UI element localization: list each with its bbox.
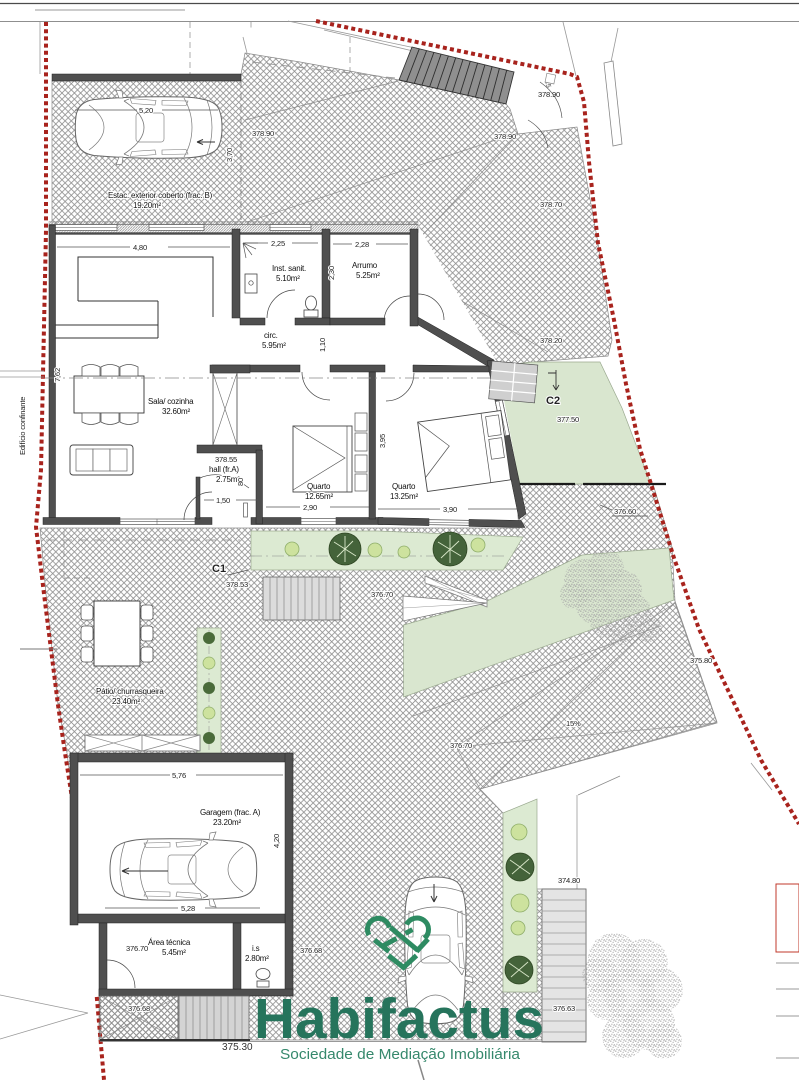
svg-text:375.30: 375.30	[222, 1042, 253, 1053]
svg-text:2,25: 2,25	[271, 239, 285, 248]
svg-text:5.10m²: 5.10m²	[276, 274, 300, 283]
svg-text:circ.: circ.	[264, 331, 278, 340]
svg-text:80: 80	[236, 478, 245, 486]
svg-text:376.70: 376.70	[450, 741, 472, 750]
svg-text:Edifício confinante: Edifício confinante	[18, 397, 27, 455]
svg-text:Área técnica: Área técnica	[148, 938, 191, 947]
svg-text:376.63: 376.63	[553, 1004, 575, 1013]
svg-text:5.95m²: 5.95m²	[262, 341, 286, 350]
svg-text:Estac. exterior coberto (frac.: Estac. exterior coberto (frac. B)	[108, 191, 213, 200]
svg-text:32.60m²: 32.60m²	[162, 407, 190, 416]
svg-text:23.20m²: 23.20m²	[213, 818, 241, 827]
svg-text:3,70: 3,70	[225, 148, 234, 162]
svg-text:378.90: 378.90	[252, 129, 274, 138]
svg-text:378.55: 378.55	[215, 455, 237, 464]
svg-text:19.20m²: 19.20m²	[133, 201, 161, 210]
svg-text:Sociedade de Mediação Imobiliá: Sociedade de Mediação Imobiliária	[280, 1047, 521, 1063]
svg-text:3,95: 3,95	[378, 434, 387, 448]
svg-text:376.68: 376.68	[300, 946, 322, 955]
svg-text:378.53: 378.53	[226, 580, 248, 589]
svg-text:Sala/ cozinha: Sala/ cozinha	[148, 397, 194, 406]
svg-text:376.60: 376.60	[614, 507, 636, 516]
svg-text:374.80: 374.80	[558, 876, 580, 885]
svg-text:2,30: 2,30	[327, 266, 336, 280]
svg-text:12.65m²: 12.65m²	[305, 492, 333, 501]
svg-text:1,50: 1,50	[216, 496, 230, 505]
svg-text:5.25m²: 5.25m²	[356, 271, 380, 280]
svg-text:375.80: 375.80	[690, 656, 712, 665]
svg-text:13.25m²: 13.25m²	[390, 492, 418, 501]
svg-text:Quarto: Quarto	[392, 482, 416, 491]
svg-text:3,90: 3,90	[443, 505, 457, 514]
svg-text:1,10: 1,10	[318, 338, 327, 352]
svg-text:5,20: 5,20	[139, 106, 153, 115]
svg-text:378.90: 378.90	[494, 132, 516, 141]
svg-text:378.70: 378.70	[540, 200, 562, 209]
svg-text:376.68: 376.68	[128, 1004, 150, 1013]
svg-text:hall (fr.A): hall (fr.A)	[209, 465, 239, 474]
svg-text:Quarto: Quarto	[307, 482, 331, 491]
svg-text:376.70: 376.70	[126, 944, 148, 953]
svg-text:5,76: 5,76	[172, 771, 186, 780]
svg-text:4,80: 4,80	[133, 243, 147, 252]
svg-text:378.20: 378.20	[540, 336, 562, 345]
svg-text:Arrumo: Arrumo	[352, 261, 378, 270]
svg-text:i.s: i.s	[252, 944, 260, 953]
svg-text:15%: 15%	[566, 719, 581, 728]
svg-text:2.80m²: 2.80m²	[245, 954, 269, 963]
svg-text:Pátio/ churrasqueira: Pátio/ churrasqueira	[96, 687, 164, 696]
svg-text:Garagem (frac. A): Garagem (frac. A)	[200, 808, 261, 817]
svg-text:7,62: 7,62	[53, 368, 62, 382]
svg-text:2,28: 2,28	[355, 240, 369, 249]
svg-text:5,28: 5,28	[181, 904, 195, 913]
svg-text:C2: C2	[546, 395, 560, 407]
svg-text:377.50: 377.50	[557, 415, 579, 424]
svg-text:23.40m²: 23.40m²	[112, 697, 140, 706]
svg-text:5.45m²: 5.45m²	[162, 948, 186, 957]
svg-text:378.90: 378.90	[538, 90, 560, 99]
svg-text:Habifactus: Habifactus	[254, 987, 544, 1051]
svg-text:2,90: 2,90	[303, 503, 317, 512]
svg-text:4,20: 4,20	[272, 834, 281, 848]
svg-text:C1: C1	[212, 563, 226, 575]
svg-text:376.70: 376.70	[371, 590, 393, 599]
svg-text:Inst. sanit.: Inst. sanit.	[272, 264, 306, 273]
